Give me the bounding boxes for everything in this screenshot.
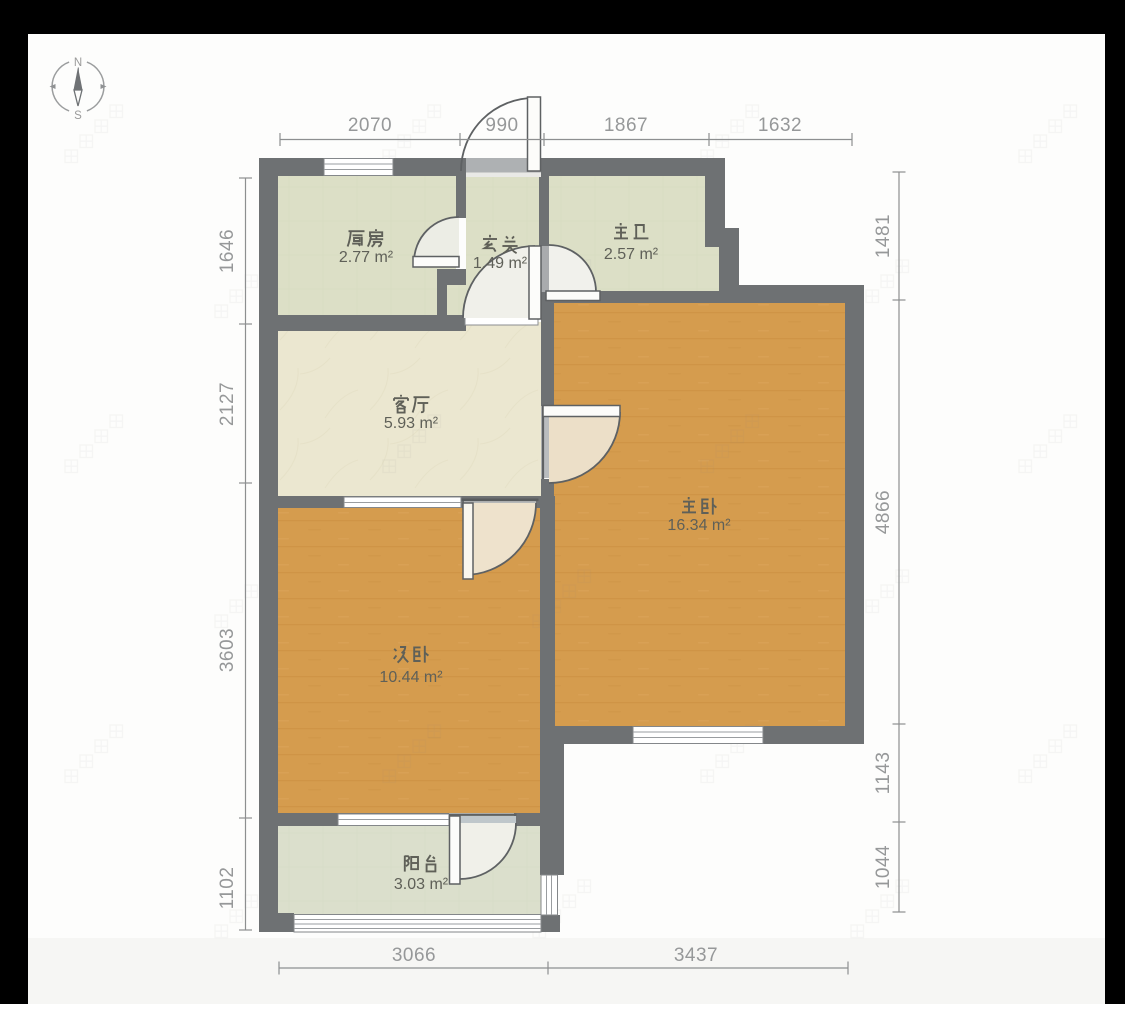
svg-text:1867: 1867 <box>604 115 648 136</box>
svg-text:5.93 m²: 5.93 m² <box>384 415 439 432</box>
svg-text:3603: 3603 <box>217 628 238 672</box>
svg-text:1.49 m²: 1.49 m² <box>473 255 528 272</box>
svg-text:2127: 2127 <box>217 382 238 426</box>
svg-text:3.03 m²: 3.03 m² <box>394 876 449 893</box>
svg-text:1044: 1044 <box>873 845 894 889</box>
svg-text:S: S <box>74 110 82 122</box>
svg-text:10.44 m²: 10.44 m² <box>379 669 443 686</box>
svg-text:2.57 m²: 2.57 m² <box>604 246 659 263</box>
svg-text:1646: 1646 <box>217 229 238 273</box>
svg-text:1632: 1632 <box>758 115 802 136</box>
svg-text:16.34 m²: 16.34 m² <box>667 517 731 534</box>
svg-text:1481: 1481 <box>873 214 894 258</box>
svg-text:1102: 1102 <box>217 867 238 910</box>
svg-text:2070: 2070 <box>348 115 392 136</box>
svg-text:990: 990 <box>485 115 518 136</box>
svg-text:3066: 3066 <box>392 945 436 966</box>
svg-text:4866: 4866 <box>873 490 894 534</box>
svg-text:3437: 3437 <box>674 945 718 966</box>
svg-text:1143: 1143 <box>873 752 894 795</box>
svg-text:2.77 m²: 2.77 m² <box>339 249 394 266</box>
